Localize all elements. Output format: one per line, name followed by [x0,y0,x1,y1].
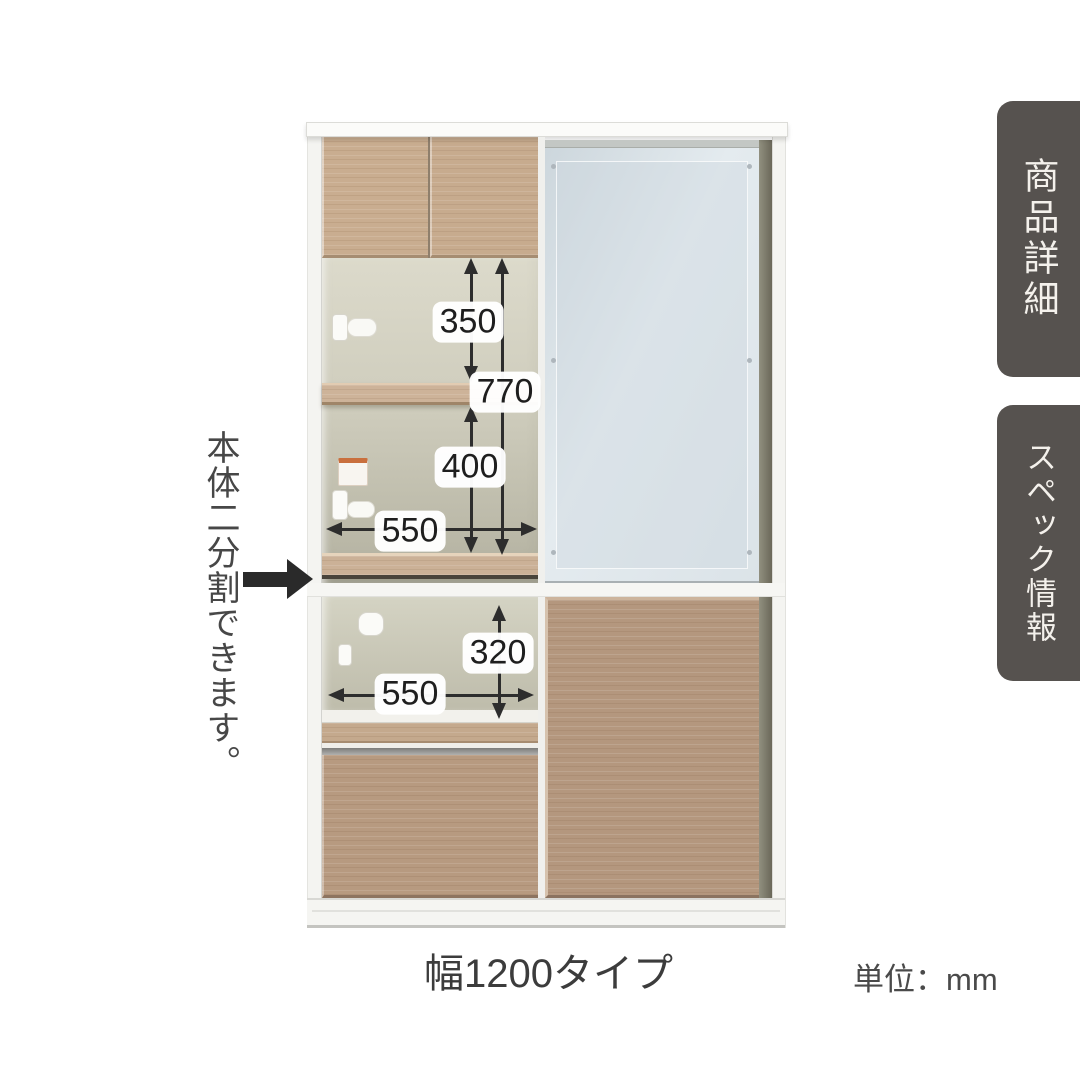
split-arrow-shaft [243,572,287,587]
dimension-label-350: 350 [433,302,504,343]
upper-door-frame-strip [538,137,545,583]
screw-dot [747,164,752,169]
arrowhead-up [492,605,506,621]
power-plug [347,318,377,337]
cabinet-base [307,898,785,928]
arrowhead-left [326,522,342,536]
tab-product-details-label: 商品詳細 [1013,157,1065,321]
base-groove-line [312,910,780,912]
arrowhead-right [518,688,534,702]
dimension-label-320: 320 [463,633,534,674]
screw-dot [747,550,752,555]
tab-spec-info-label: スペック情報 [1016,441,1061,645]
unit-separator-band [307,583,785,597]
screw-dot [551,550,556,555]
arrowhead-left [328,688,344,702]
arrowhead-down [492,703,506,719]
dimension-label-770: 770 [470,372,541,413]
arrowhead-up [495,258,509,274]
screw-dot [747,358,752,363]
cabinet-right-rail-shadow [759,140,772,900]
lower-door-frame-strip [538,597,545,898]
screw-dot [551,164,556,169]
glass-sliding-door [545,140,759,583]
upper-door-gap [428,137,430,258]
glass-door-top-rail [545,140,759,148]
power-plug [347,501,375,518]
cabinet-left-frame [307,137,322,928]
cabinet-top-board [306,122,788,137]
lower-front-rail [322,723,538,743]
width-type-caption: 幅1200タイプ [424,941,673,999]
split-arrow-head [287,559,313,599]
arrowhead-down [495,539,509,555]
power-outlet [332,490,348,520]
product-image: 350 770 400 550 320 550 本体二分割できます。 幅1200… [0,0,1080,1080]
arrowhead-right [521,522,537,536]
warning-sticker [338,458,368,486]
tab-product-details[interactable]: 商品詳細 [997,101,1080,377]
wood-sliding-door [545,597,759,898]
drawer-handle-groove [322,748,538,755]
cabinet-right-frame [772,137,786,928]
power-outlet [358,612,384,636]
upper-counter-board [322,553,538,579]
tab-spec-info[interactable]: スペック情報 [997,405,1080,681]
dimension-label-550-upper: 550 [375,511,446,552]
upper-cabinet-door-right [430,137,538,258]
arrowhead-up [464,258,478,274]
glass-inner-panel [556,161,748,569]
power-outlet [332,314,348,341]
upper-cabinet-door-left [322,137,428,258]
split-note-text: 本体二分割できます。 [196,430,245,790]
power-outlet [338,644,352,666]
arrowhead-down [464,537,478,553]
dimension-label-550-lower: 550 [375,674,446,715]
drawer-front [322,755,538,898]
screw-dot [551,358,556,363]
dimension-label-400: 400 [435,447,506,488]
unit-caption: 単位：mm [853,954,998,999]
